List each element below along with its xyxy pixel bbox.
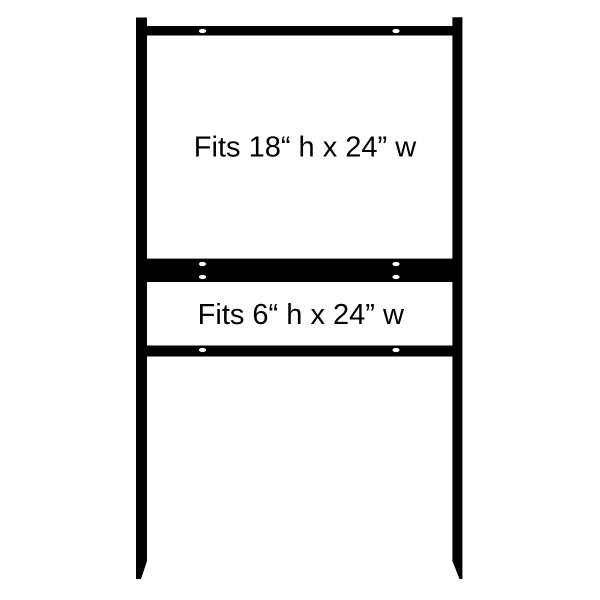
svg-text:Fits 18“ h x 24” w: Fits 18“ h x 24” w — [194, 131, 417, 163]
svg-text:Fits 6“ h x 24” w: Fits 6“ h x 24” w — [198, 299, 405, 331]
